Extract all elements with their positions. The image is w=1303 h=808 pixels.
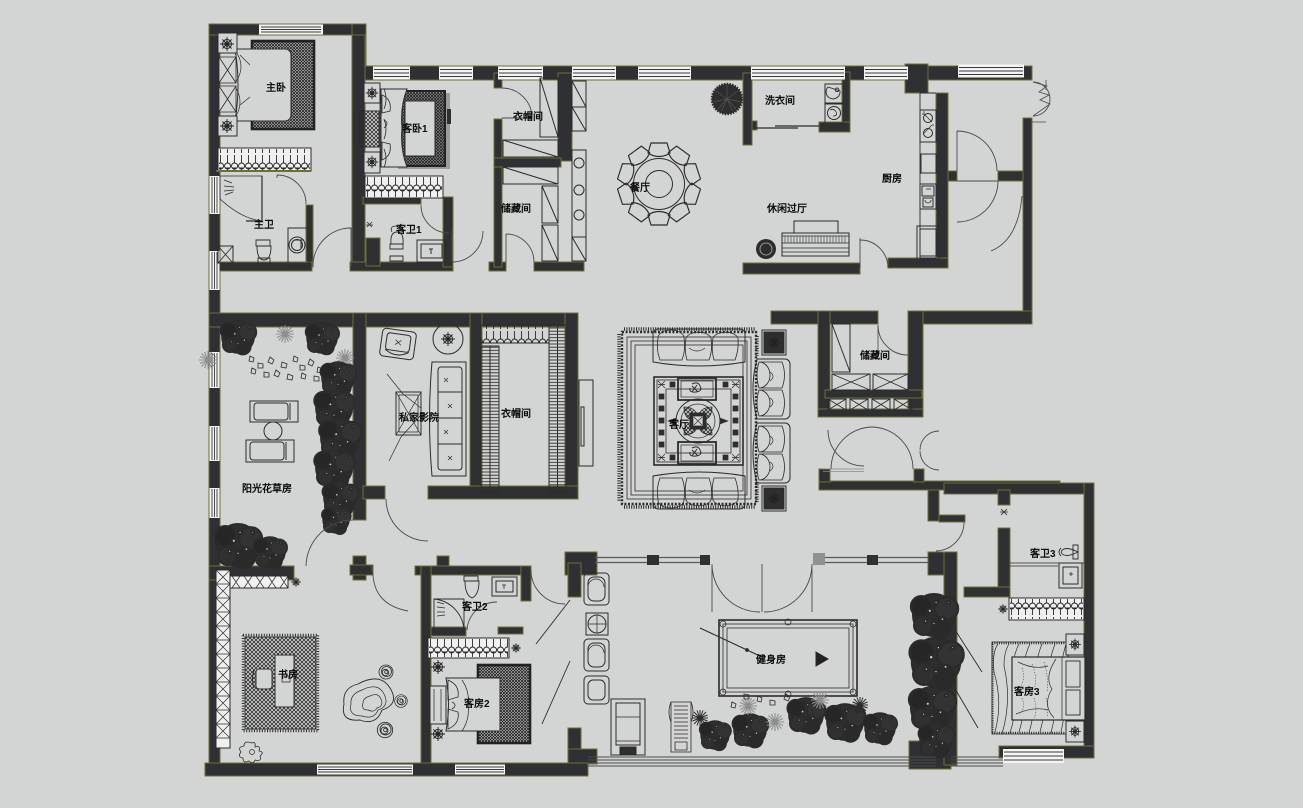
svg-text:衣帽间: 衣帽间 bbox=[513, 110, 543, 123]
svg-text:洗衣间: 洗衣间 bbox=[765, 94, 795, 107]
svg-text:书房: 书房 bbox=[278, 668, 298, 681]
svg-text:主卫: 主卫 bbox=[254, 218, 274, 231]
svg-text:主卧: 主卧 bbox=[266, 81, 286, 94]
svg-text:客房2: 客房2 bbox=[463, 697, 490, 710]
svg-text:餐厅: 餐厅 bbox=[629, 181, 650, 194]
svg-text:客厅: 客厅 bbox=[668, 418, 689, 431]
svg-text:休闲过厅: 休闲过厅 bbox=[766, 202, 807, 215]
svg-text:储藏间: 储藏间 bbox=[859, 349, 890, 362]
svg-text:客卫1: 客卫1 bbox=[395, 223, 422, 236]
svg-text:阳光花草房: 阳光花草房 bbox=[242, 482, 292, 495]
svg-text:健身房: 健身房 bbox=[756, 653, 786, 666]
svg-text:储藏间: 储藏间 bbox=[500, 202, 531, 215]
svg-text:私家影院: 私家影院 bbox=[398, 411, 439, 424]
svg-text:客卫3: 客卫3 bbox=[1029, 547, 1056, 560]
svg-text:衣帽间: 衣帽间 bbox=[501, 407, 531, 420]
svg-text:客房3: 客房3 bbox=[1013, 685, 1040, 698]
svg-text:客卫2: 客卫2 bbox=[461, 600, 488, 613]
svg-text:客卧1: 客卧1 bbox=[401, 122, 428, 135]
svg-text:厨房: 厨房 bbox=[882, 172, 902, 185]
